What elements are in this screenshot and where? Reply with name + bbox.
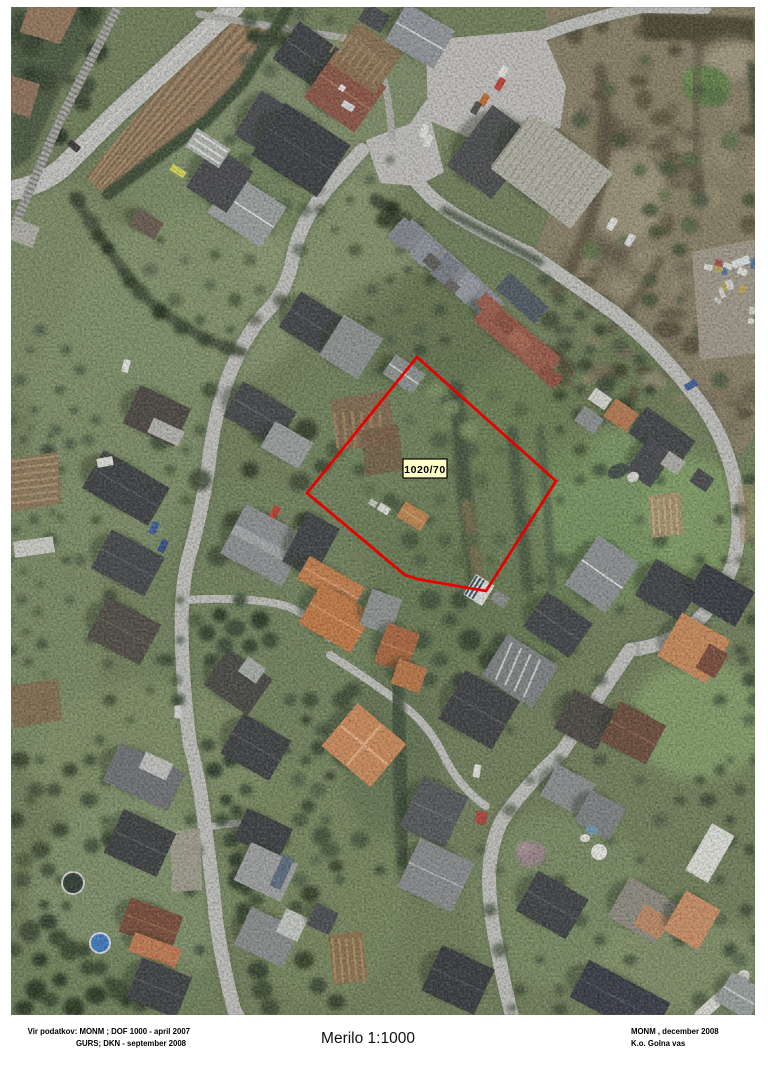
- svg-text:1020/70: 1020/70: [404, 464, 445, 476]
- svg-text:MONM , december 2008: MONM , december 2008: [631, 1027, 719, 1036]
- svg-text:Vir podatkov: MONM ; DOF 1000: Vir podatkov: MONM ; DOF 1000 - april 20…: [28, 1027, 190, 1036]
- svg-text:GURS; DKN - september 2008: GURS; DKN - september 2008: [76, 1039, 187, 1048]
- svg-text:Merilo 1:1000: Merilo 1:1000: [321, 1030, 415, 1047]
- svg-text:K.o. Golna vas: K.o. Golna vas: [631, 1039, 686, 1048]
